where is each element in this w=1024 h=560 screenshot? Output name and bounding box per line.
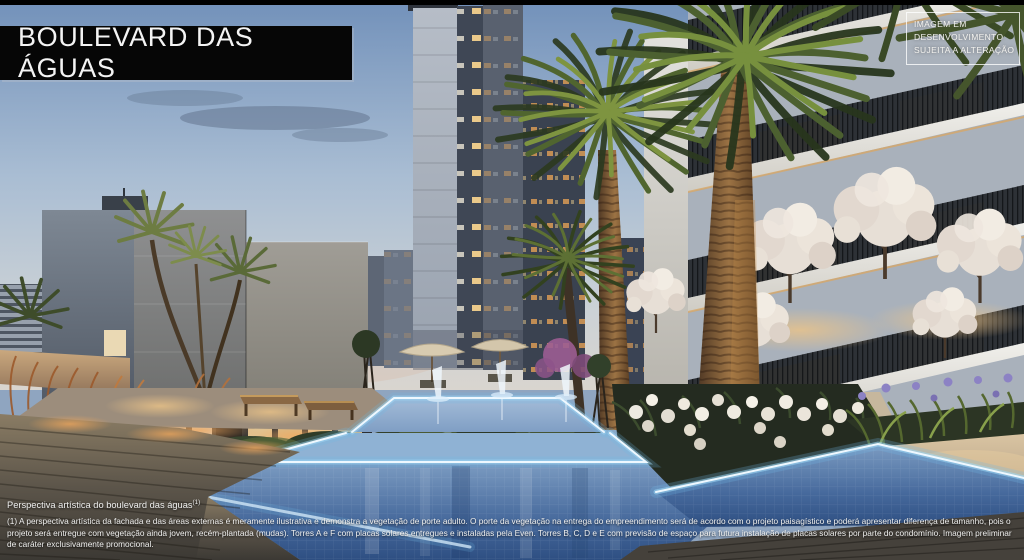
central-tower — [408, 0, 523, 370]
badge-line-3: SUJEITA A ALTERAÇÃO — [914, 44, 1012, 57]
page-root: { "banner": { "title": "BOULEVARD DAS ÁG… — [0, 0, 1024, 560]
caption-title: Perspectiva artística do boulevard das á… — [7, 499, 1018, 510]
development-badge: IMAGEM EM DESENVOLVIMENTO SUJEITA A ALTE… — [906, 12, 1020, 65]
scene-illustration — [0, 0, 1024, 560]
top-border — [0, 0, 1024, 5]
caption: Perspectiva artística do boulevard das á… — [7, 499, 1018, 550]
title-banner: BOULEVARD DAS ÁGUAS — [0, 26, 352, 80]
badge-line-2: DESENVOLVIMENTO — [914, 31, 1012, 44]
badge-line-1: IMAGEM EM — [914, 18, 1012, 31]
table — [420, 380, 446, 388]
page-title: BOULEVARD DAS ÁGUAS — [18, 22, 352, 84]
lit-doorway — [104, 330, 126, 356]
caption-superscript: (1) — [193, 499, 201, 506]
caption-disclaimer: (1) A perspectiva artística da fachada e… — [7, 516, 1018, 550]
caption-title-text: Perspectiva artística do boulevard das á… — [7, 500, 193, 510]
